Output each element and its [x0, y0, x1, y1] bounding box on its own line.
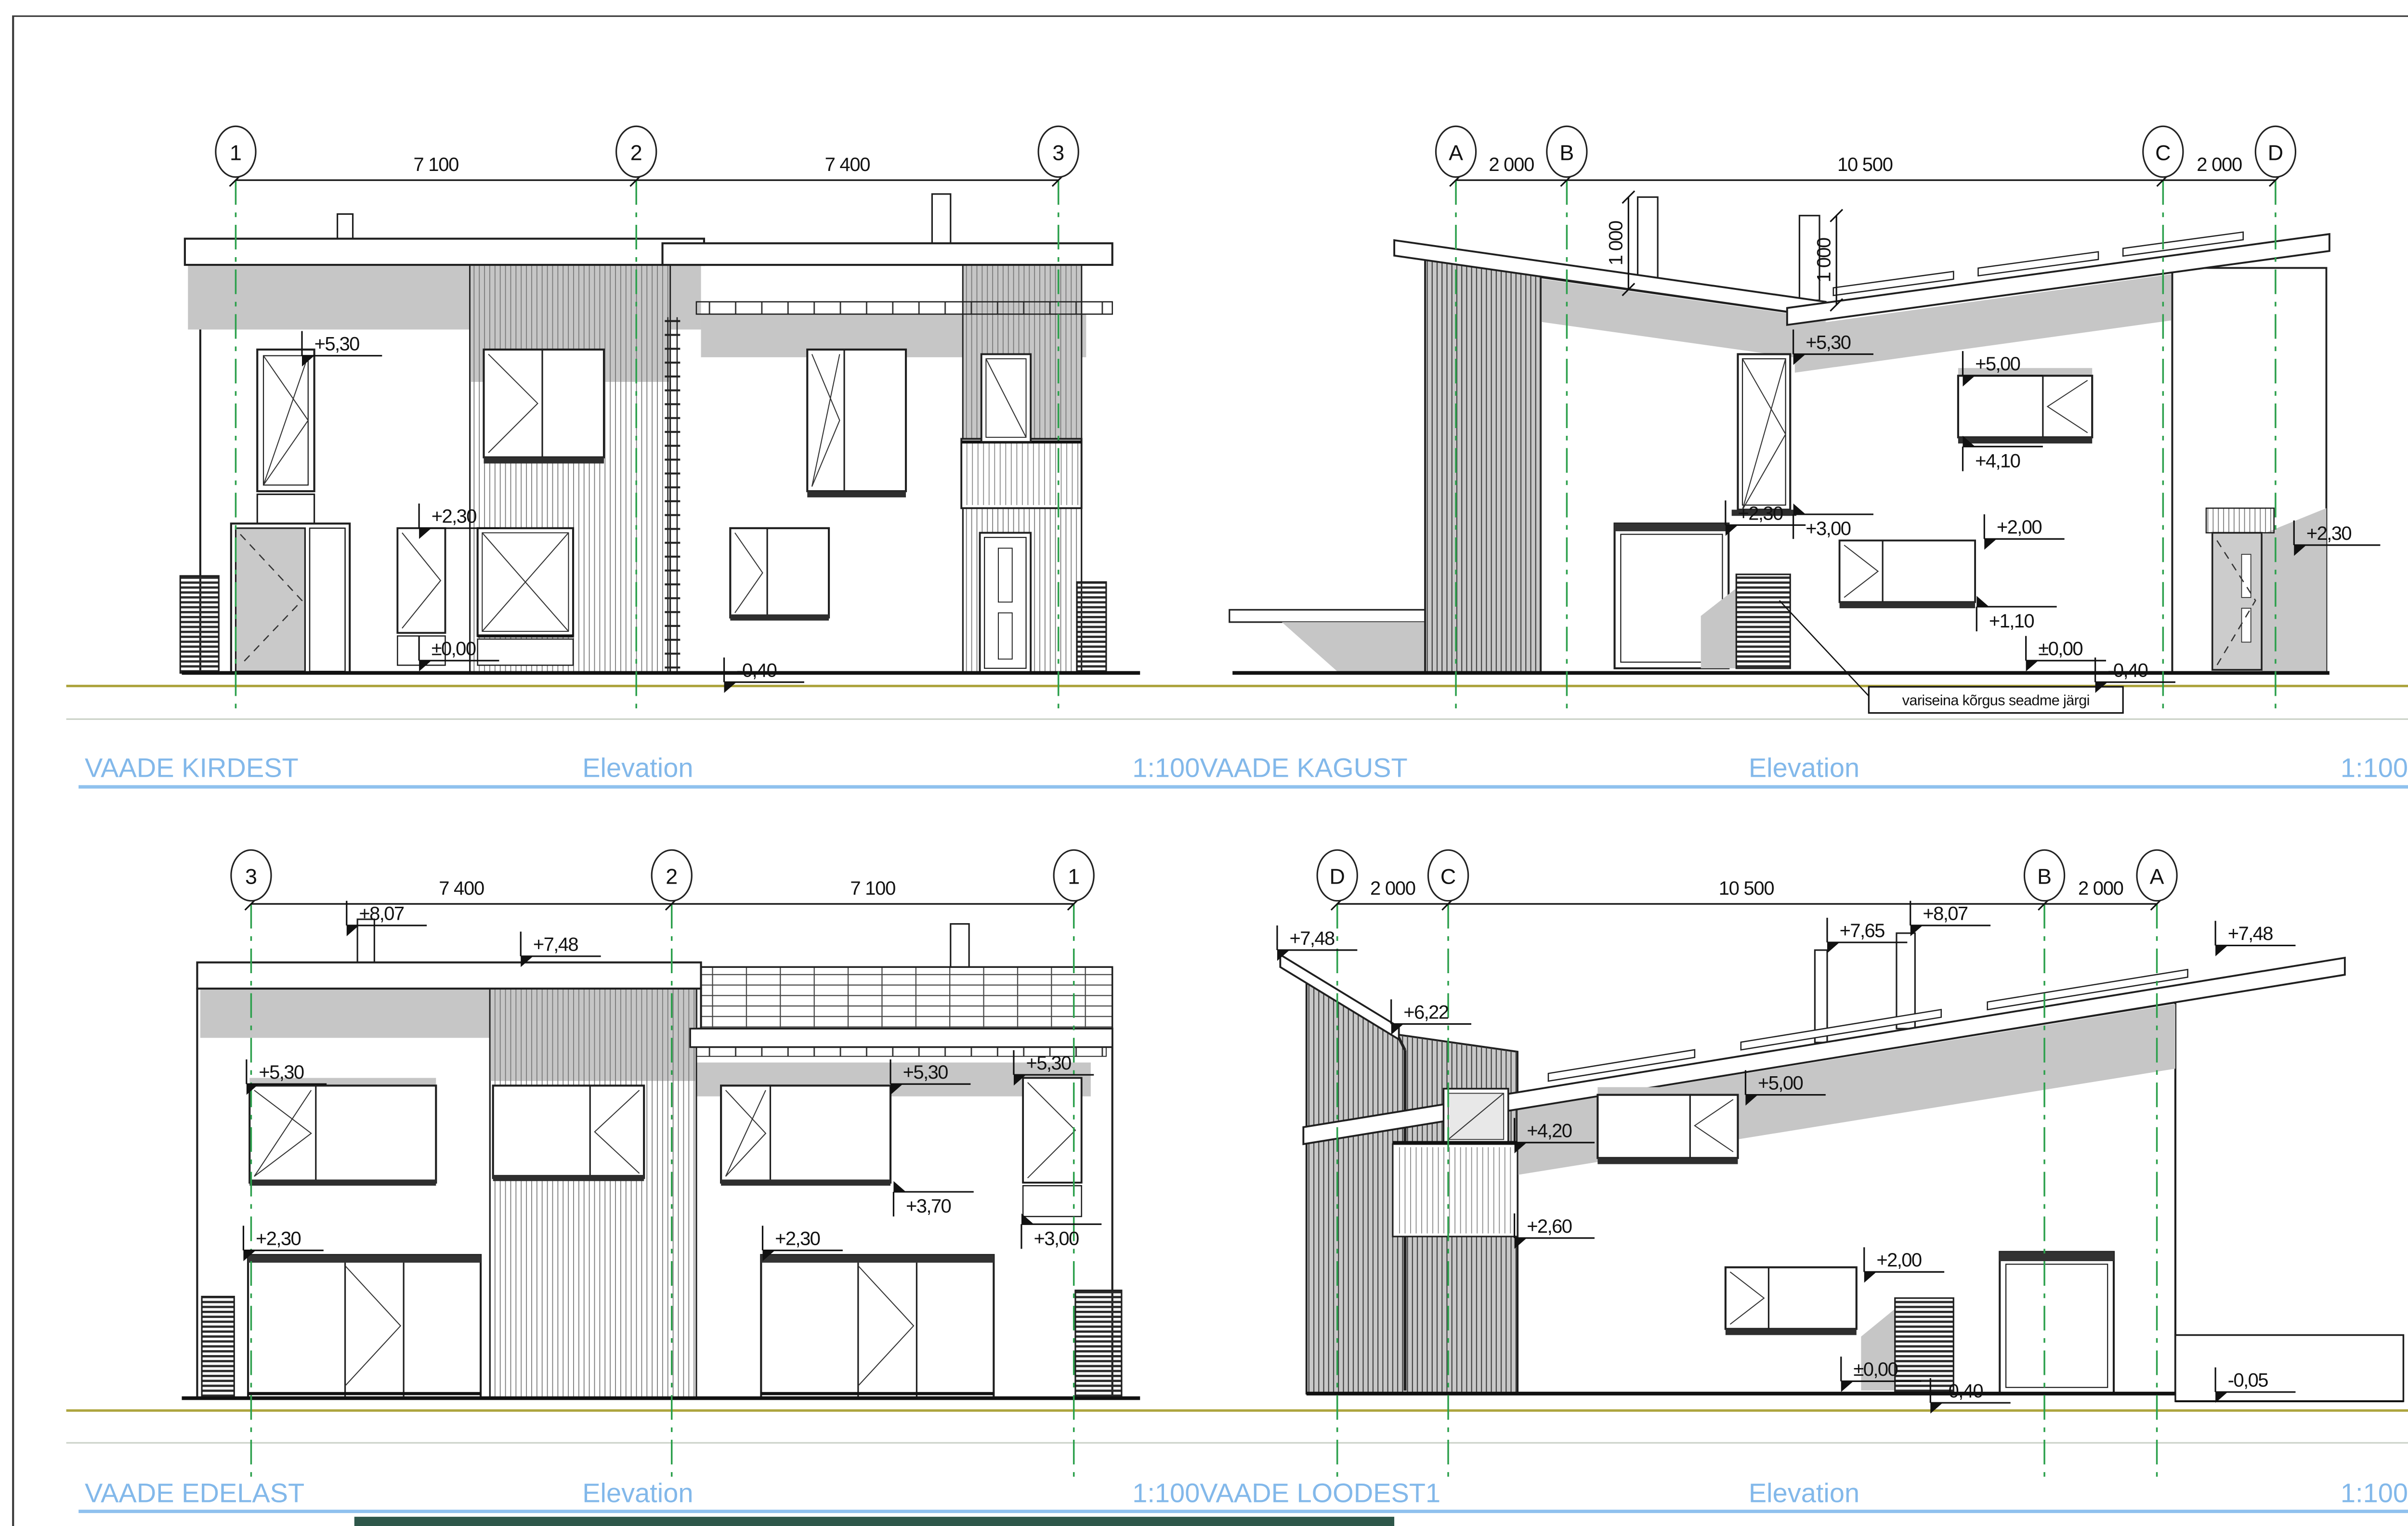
vertical-dim-label: 1 000	[1606, 221, 1627, 265]
grid-bubble-label: D	[1330, 865, 1345, 889]
grid-bubble-label: 3	[245, 865, 257, 889]
level-mark-label: +1,10	[1989, 611, 2034, 632]
level-mark-label: +4,20	[1527, 1121, 1572, 1142]
grid-bubble-label: D	[2268, 141, 2283, 165]
level-mark-label: +5,00	[1975, 353, 2020, 375]
grid-bubble-label: 1	[1068, 865, 1080, 889]
level-mark-arrow	[1827, 942, 1840, 953]
dim-label: 2 000	[2197, 154, 2242, 175]
level-mark-label: +2,30	[432, 506, 477, 527]
balcony	[961, 439, 1082, 508]
title-text: Elevation	[582, 752, 693, 783]
grid-bubble-label: 3	[1052, 141, 1064, 165]
drawing-vaade-kirdest	[180, 194, 1140, 673]
grid-bubble-label: C	[1440, 865, 1456, 889]
title-text: 1:100VAADE KAGUST	[1132, 752, 1407, 783]
dim-label: 2 000	[1370, 878, 1415, 899]
dim-label: 10 500	[1719, 878, 1774, 899]
grid-bubble-label: A	[2150, 865, 2164, 889]
level-mark-label: +8,07	[1923, 903, 1968, 925]
level-mark-label: -0,05	[2228, 1370, 2268, 1391]
drawing-vaade-edelast	[182, 919, 1140, 1398]
dim-label: 7 400	[825, 154, 870, 175]
level-mark-label: +5,30	[1806, 332, 1851, 353]
title-text: Elevation	[1749, 752, 1859, 783]
level-mark-label: +7,48	[1290, 928, 1335, 949]
level-mark-label: +2,30	[1738, 503, 1783, 524]
level-mark-label: +2,30	[256, 1228, 301, 1249]
level-mark-label: +5,30	[903, 1062, 948, 1083]
grid-bubble-label: C	[2155, 141, 2171, 165]
title-text: 1:100VAADE LOODEST1	[1132, 1477, 1440, 1508]
grid-bubble-label: B	[2037, 865, 2052, 889]
level-mark-label: +5,00	[1758, 1072, 1803, 1094]
level-mark-label: +7,65	[1840, 920, 1885, 941]
level-mark-label: +2,00	[1876, 1250, 1922, 1271]
title-text: VAADE EDELAST	[85, 1477, 304, 1508]
grid-bubble-label: 2	[630, 141, 642, 165]
dim-label: 7 400	[439, 878, 484, 899]
dim-label: 2 000	[2078, 878, 2123, 899]
level-mark-label: +7,48	[533, 934, 578, 955]
dim-label: 7 100	[413, 154, 458, 175]
level-mark-label: -0,40	[2107, 660, 2147, 681]
level-mark-label: +6,22	[1403, 1002, 1449, 1023]
level-mark-label: +3,00	[1806, 518, 1851, 539]
level-mark-label: +2,30	[775, 1228, 820, 1249]
note-text: variseina kõrgus seadme järgi	[1902, 692, 2090, 709]
level-mark-label: +5,30	[1026, 1053, 1072, 1074]
roof-ladder	[665, 317, 680, 671]
level-mark-label: +5,30	[314, 334, 360, 355]
grid-bubble-label: 2	[666, 865, 678, 889]
level-mark-label: +4,10	[1975, 451, 2020, 472]
grid-bubble-label: 1	[230, 141, 242, 165]
dim-label: 7 100	[850, 878, 895, 899]
grid-bubble-label: A	[1449, 141, 1463, 165]
title-text: Elevation	[582, 1477, 693, 1508]
level-mark-label: +2,60	[1527, 1216, 1572, 1237]
dim-label: 2 000	[1489, 154, 1534, 175]
title-text: 1:100	[2341, 752, 2408, 783]
level-mark-label: -0,40	[736, 660, 776, 681]
level-mark-label: -0,40	[1943, 1381, 1983, 1402]
level-mark-label: ±0,00	[1853, 1359, 1898, 1380]
dim-label: 10 500	[1837, 154, 1893, 175]
level-mark-label: +5,30	[259, 1062, 304, 1083]
title-text: Elevation	[1749, 1477, 1859, 1508]
drawing-vaade-kagust: variseina kõrgus seadme järgi	[1230, 197, 2329, 713]
doors	[2000, 1252, 2114, 1394]
level-mark-label: +2,00	[1997, 517, 2042, 538]
level-mark-label: +3,70	[906, 1196, 951, 1217]
level-mark-arrow	[724, 682, 737, 693]
title-text: VAADE KIRDEST	[85, 752, 299, 783]
level-mark-label: ±0,00	[432, 639, 476, 660]
elevation-sheet: variseina kõrgus seadme järgi	[0, 0, 2408, 1526]
level-mark-label: +7,48	[2228, 923, 2273, 944]
level-mark-label: +3,00	[1034, 1228, 1079, 1249]
level-mark-arrow	[2215, 945, 2228, 956]
level-mark-arrow	[1930, 1403, 1943, 1413]
footer-bar	[354, 1517, 1394, 1526]
vertical-dim-label: 1 000	[1813, 238, 1834, 282]
level-mark-label: +2,30	[2306, 523, 2352, 544]
level-mark-label: +8,07	[359, 903, 404, 925]
title-text: 1:100	[2341, 1477, 2408, 1508]
level-mark-label: ±0,00	[2038, 639, 2082, 660]
grid-bubble-label: B	[1559, 141, 1574, 165]
